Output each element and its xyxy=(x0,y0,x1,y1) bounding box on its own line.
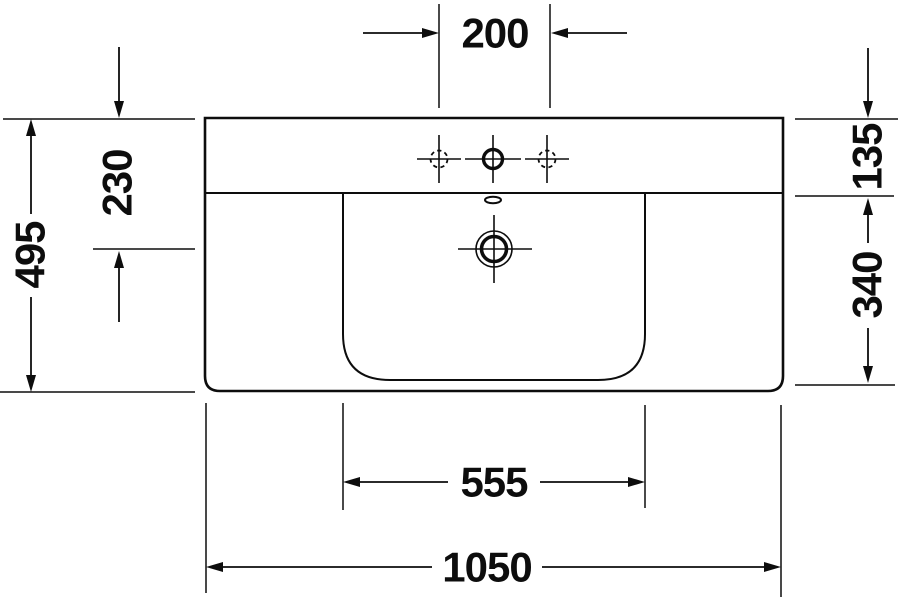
dimension-rim-to-deck: 135 xyxy=(795,48,898,196)
faucet-hole-left-optional-icon xyxy=(417,135,461,183)
dimension-label-340: 340 xyxy=(844,251,891,318)
drain-outlet-icon xyxy=(458,215,532,283)
faucet-hole-right-optional-icon xyxy=(525,135,569,183)
dimension-label-135: 135 xyxy=(844,123,891,191)
faucet-hole-center xyxy=(465,135,521,183)
drawing-sheet: 200 495 230 135 340 xyxy=(0,0,900,599)
dimension-label-200: 200 xyxy=(461,10,528,57)
dimension-rim-to-drain: 230 xyxy=(93,47,195,322)
dimension-label-230: 230 xyxy=(94,149,141,216)
dimension-bowl-width: 555 xyxy=(343,403,645,510)
dimension-label-1050: 1050 xyxy=(442,544,531,591)
dimension-label-495: 495 xyxy=(7,221,54,289)
dimension-tap-hole-spacing: 200 xyxy=(363,4,627,108)
washbasin-dimension-diagram: 200 495 230 135 340 xyxy=(0,0,900,599)
dimension-deck-to-bowl: 340 xyxy=(795,198,895,385)
overflow-slot-icon xyxy=(485,197,501,203)
dimension-label-555: 555 xyxy=(460,459,528,506)
